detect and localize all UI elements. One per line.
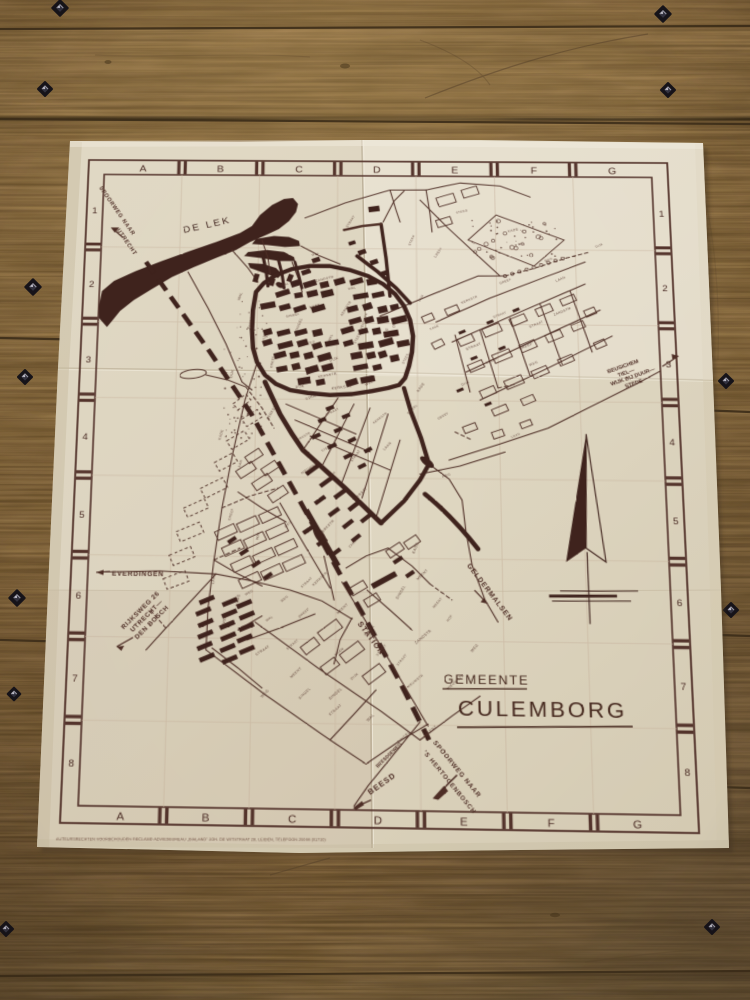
svg-text:7: 7	[72, 673, 78, 684]
svg-text:DIJK: DIJK	[295, 384, 305, 389]
svg-text:D: D	[373, 165, 381, 176]
svg-text:A: A	[139, 164, 147, 175]
svg-text:AUTEURSRECHTEN VOORBEHOUDEN R: AUTEURSRECHTEN VOORBEHOUDEN RECLAME-ADVI…	[56, 837, 326, 842]
svg-text:5: 5	[673, 516, 679, 527]
svg-text:WEG: WEG	[470, 643, 480, 653]
svg-text:STEEG: STEEG	[407, 234, 416, 246]
svg-text:STRAAT: STRAAT	[528, 320, 544, 329]
svg-text:WAL: WAL	[348, 285, 357, 291]
svg-text:SINGEL: SINGEL	[395, 584, 407, 600]
svg-text:STEEG: STEEG	[353, 332, 362, 344]
svg-text:STRAAT: STRAAT	[465, 341, 482, 351]
svg-text:F: F	[531, 166, 538, 177]
svg-text:DREEF: DREEF	[227, 508, 235, 521]
svg-text:7: 7	[680, 681, 686, 693]
svg-text:F: F	[547, 817, 555, 830]
svg-text:MEENT: MEENT	[415, 568, 429, 581]
svg-text:WAL: WAL	[311, 251, 320, 257]
svg-text:G: G	[608, 166, 617, 177]
svg-text:E: E	[460, 816, 469, 829]
svg-text:EVERDINGEN: EVERDINGEN	[112, 571, 164, 578]
svg-text:6: 6	[75, 590, 81, 601]
svg-text:STRAAT: STRAAT	[345, 215, 356, 229]
svg-text:DE LEK: DE LEK	[182, 215, 232, 235]
svg-text:A: A	[116, 811, 125, 824]
svg-text:LAAN: LAAN	[555, 275, 567, 283]
svg-text:WAL: WAL	[365, 713, 375, 723]
svg-text:DREEF: DREEF	[269, 356, 276, 368]
svg-text:D: D	[374, 815, 382, 828]
svg-text:STRAAT: STRAAT	[300, 576, 314, 589]
svg-text:WEG: WEG	[544, 256, 554, 263]
svg-text:STRAAT: STRAAT	[395, 653, 408, 667]
svg-text:1: 1	[659, 209, 665, 219]
svg-text:LAAN: LAAN	[211, 573, 217, 584]
svg-text:SINGEL: SINGEL	[285, 312, 300, 319]
svg-text:STRAAT: STRAAT	[492, 310, 507, 319]
svg-text:WEG: WEG	[441, 472, 452, 479]
svg-text:DREEF: DREEF	[437, 411, 450, 421]
svg-text:G: G	[633, 819, 643, 832]
svg-text:DIJK: DIJK	[594, 242, 603, 249]
svg-text:C: C	[295, 165, 303, 176]
svg-text:KERKSTR: KERKSTR	[331, 384, 352, 391]
svg-text:ZANDSTR: ZANDSTR	[553, 306, 572, 317]
svg-text:B: B	[202, 812, 210, 825]
svg-text:KADE: KADE	[429, 324, 440, 331]
svg-text:HOF: HOF	[445, 614, 453, 623]
svg-text:NIEUWSTR: NIEUWSTR	[406, 673, 425, 689]
svg-text:BEESD: BEESD	[367, 772, 398, 797]
svg-text:LAAN: LAAN	[382, 441, 392, 451]
svg-text:DIJK: DIJK	[349, 672, 359, 681]
svg-text:KADE: KADE	[507, 227, 519, 233]
svg-text:2: 2	[662, 283, 668, 293]
svg-text:WAL: WAL	[255, 531, 261, 540]
svg-text:ZANDSTR: ZANDSTR	[347, 533, 362, 548]
svg-text:E: E	[451, 165, 459, 176]
svg-text:KERKSTR: KERKSTR	[319, 518, 336, 535]
svg-text:DIJK: DIJK	[229, 369, 235, 379]
svg-text:SINGEL: SINGEL	[297, 686, 311, 700]
svg-text:KERKSTR: KERKSTR	[311, 570, 328, 587]
svg-text:MEENT: MEENT	[431, 596, 443, 609]
svg-text:KERKSTR: KERKSTR	[318, 371, 338, 379]
svg-text:4: 4	[82, 431, 88, 442]
svg-text:MEENT: MEENT	[289, 666, 303, 679]
svg-text:DREEF: DREEF	[499, 277, 512, 285]
svg-text:WAL: WAL	[237, 292, 244, 301]
svg-text:5: 5	[79, 509, 85, 520]
svg-text:KADE: KADE	[217, 429, 224, 440]
svg-text:GELDERMALSEN: GELDERMALSEN	[465, 562, 514, 622]
svg-text:KERKSTR: KERKSTR	[460, 295, 478, 305]
svg-text:CULEMBORG: CULEMBORG	[458, 697, 628, 723]
svg-text:8: 8	[68, 757, 74, 769]
svg-text:3: 3	[86, 354, 92, 364]
svg-text:GEMEENTE: GEMEENTE	[443, 673, 529, 688]
svg-text:STEEG: STEEG	[320, 443, 333, 452]
svg-text:WAL: WAL	[265, 614, 274, 622]
svg-text:6: 6	[676, 597, 682, 608]
svg-text:B: B	[217, 164, 224, 175]
svg-text:MEENT: MEENT	[423, 724, 438, 737]
svg-text:ZANDSTR: ZANDSTR	[414, 628, 433, 645]
svg-text:WEG: WEG	[279, 594, 289, 603]
svg-text:STEEG: STEEG	[456, 208, 469, 214]
svg-text:4: 4	[669, 437, 675, 448]
svg-text:STRAAT: STRAAT	[354, 486, 368, 500]
svg-text:8: 8	[684, 767, 690, 779]
svg-text:WEG: WEG	[528, 360, 539, 367]
svg-text:DREEF: DREEF	[485, 356, 499, 365]
svg-text:1: 1	[92, 205, 98, 215]
svg-text:STRAAT: STRAAT	[254, 644, 270, 657]
svg-text:2: 2	[89, 279, 95, 289]
svg-text:C: C	[288, 813, 296, 826]
svg-text:DREEF: DREEF	[433, 246, 443, 258]
